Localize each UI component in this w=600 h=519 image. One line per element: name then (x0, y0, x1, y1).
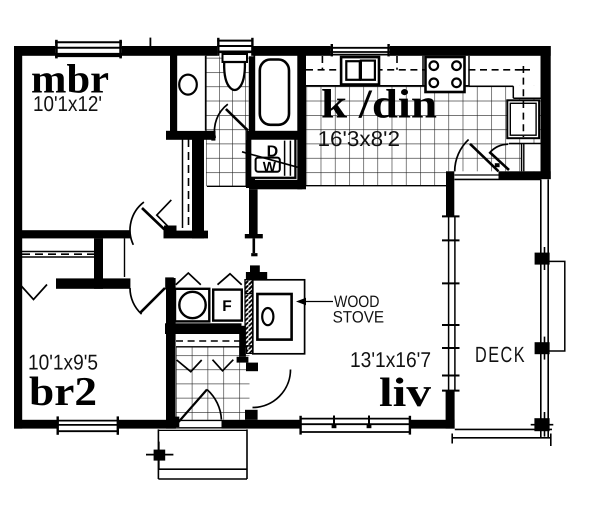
svg-text:16'3x8'2: 16'3x8'2 (318, 127, 401, 151)
svg-text:br2: br2 (29, 368, 97, 414)
svg-text:F: F (222, 298, 231, 315)
svg-text:STOVE: STOVE (333, 308, 385, 326)
svg-text:10'1x12': 10'1x12' (33, 92, 102, 116)
svg-text:DECK: DECK (475, 342, 526, 367)
svg-text:liv: liv (379, 369, 432, 415)
svg-text:k /din: k /din (321, 81, 437, 127)
